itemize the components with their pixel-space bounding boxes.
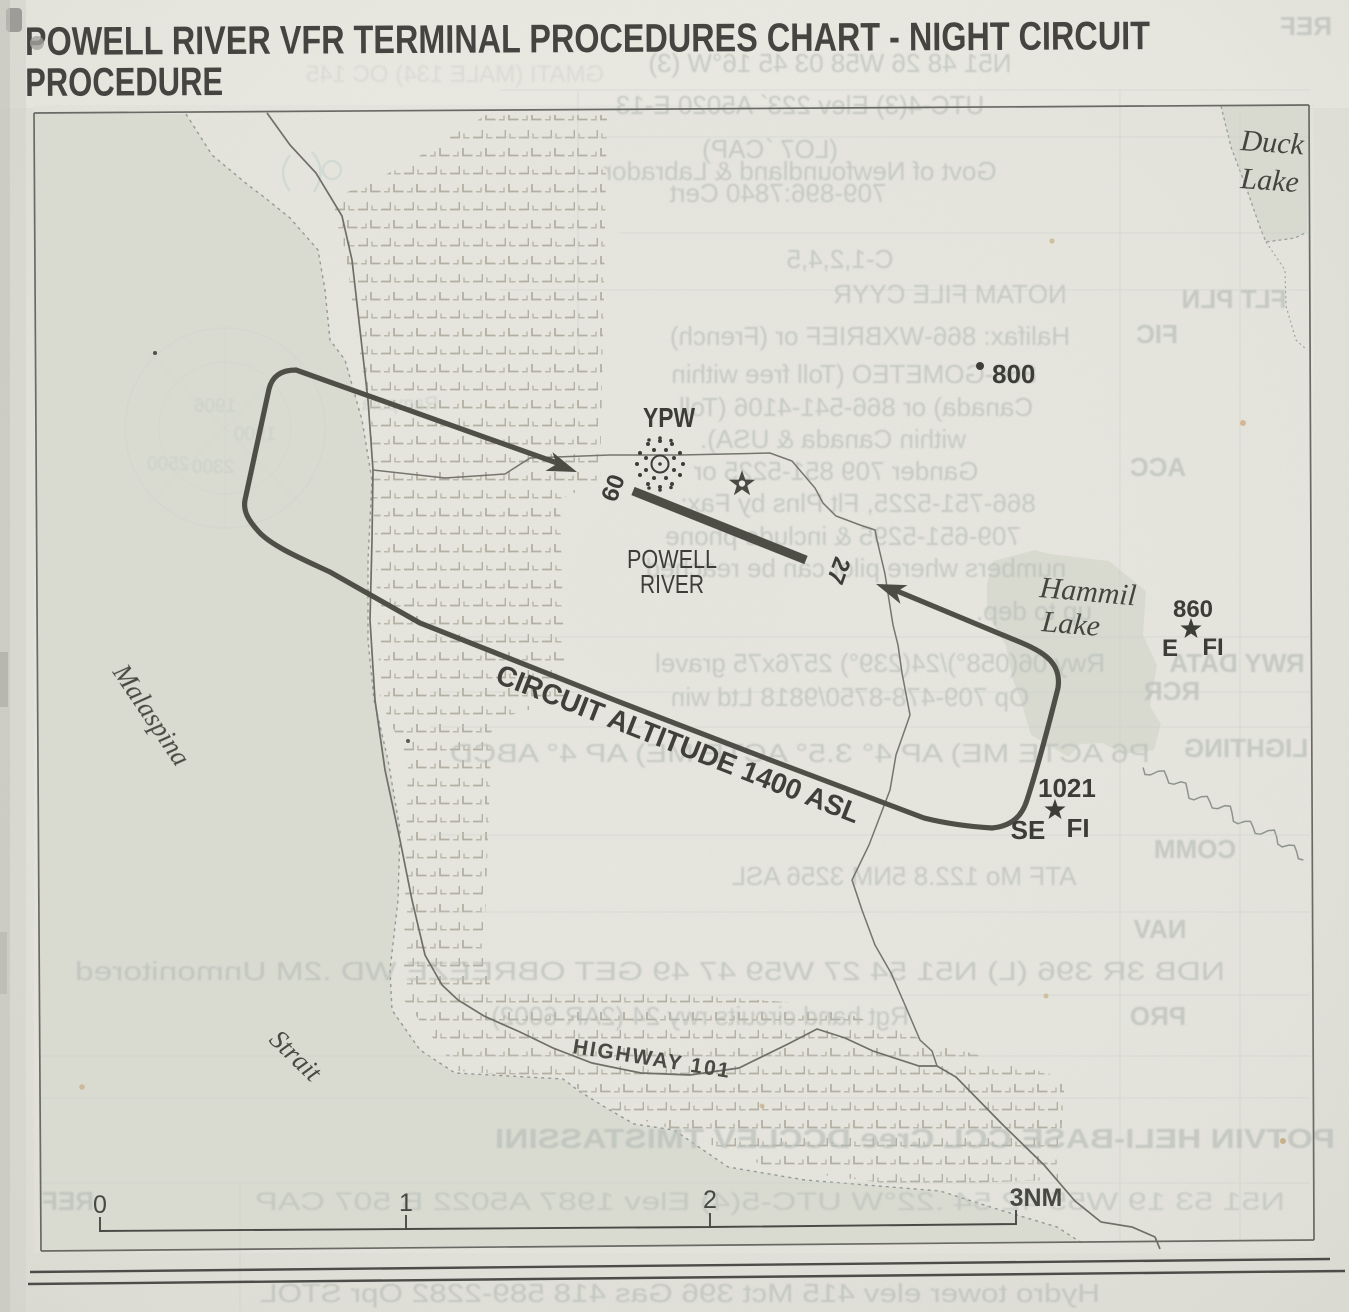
- svg-text:Lake: Lake: [1039, 605, 1101, 643]
- svg-text:FLT PLN: FLT PLN: [1182, 284, 1287, 314]
- svg-text:FI: FI: [1066, 813, 1089, 843]
- svg-text:COMM: COMM: [1154, 834, 1236, 864]
- svg-text:RCR: RCR: [1144, 676, 1201, 706]
- svg-text:E: E: [1162, 635, 1178, 662]
- svg-text:SE: SE: [1011, 815, 1046, 845]
- svg-text:RWY DATA: RWY DATA: [1169, 648, 1305, 678]
- svg-text:Hydro tower elev 415 Mct 396: Hydro tower elev 415 Mct 396 Gas 418 589…: [260, 1278, 1100, 1308]
- svg-text:LIGHTING: LIGHTING: [1184, 733, 1308, 763]
- svg-text:1021: 1021: [1038, 773, 1096, 803]
- svg-text:NOTAM FILE CYYR: NOTAM FILE CYYR: [833, 279, 1067, 309]
- svg-text:REF: REF: [42, 1186, 94, 1216]
- svg-text:POTVIN HELI-BASE CCL Cree DC: POTVIN HELI-BASE CCL Cree DCCLEV TMISTAS…: [495, 1123, 1335, 1154]
- svg-text:within Canada & USA).: within Canada & USA).: [700, 424, 967, 454]
- svg-text:GMATI (MALE 134) OC 145: GMATI (MALE 134) OC 145: [306, 61, 604, 88]
- svg-text:RIVER: RIVER: [640, 571, 704, 599]
- svg-text:2300: 2300: [192, 457, 234, 478]
- svg-text:C-1,2,4,5: C-1,2,4,5: [787, 244, 894, 274]
- svg-text:1: 1: [399, 1189, 413, 1217]
- svg-text:3NM: 3NM: [1010, 1184, 1063, 1212]
- svg-text:Duck: Duck: [1239, 124, 1306, 161]
- svg-text:PROCEDURE: PROCEDURE: [25, 60, 223, 105]
- svg-text:ACC: ACC: [1130, 452, 1187, 482]
- svg-text:0: 0: [93, 1191, 107, 1219]
- svg-text:Op 709-478-8750/9818 Ltd win: Op 709-478-8750/9818 Ltd win: [671, 682, 1030, 712]
- svg-text:PRO: PRO: [1130, 1001, 1186, 1031]
- svg-text:Canada) or 866-541-4106 (Toll: Canada) or 866-541-4106 (Toll: [679, 392, 1033, 422]
- svg-text:Lake: Lake: [1239, 162, 1300, 199]
- svg-text:FIC: FIC: [1136, 319, 1178, 349]
- svg-text:POWELL RIVER VFR TERMINAL PROC: POWELL RIVER VFR TERMINAL PROCEDURES CHA…: [25, 14, 1150, 64]
- svg-text:Rgt hand circuits rwy 24 (2AR: Rgt hand circuits rwy 24 (2AR 6002): [491, 1001, 909, 1031]
- svg-text:FI: FI: [1202, 634, 1223, 661]
- svg-text:NAV: NAV: [1133, 914, 1187, 944]
- svg-text:2500: 2500: [147, 454, 189, 475]
- svg-text:709-896:7840 Cert: 709-896:7840 Cert: [669, 178, 887, 208]
- svg-text:ATF Mo 122.8 5NM 3256 ASL: ATF Mo 122.8 5NM 3256 ASL: [732, 861, 1077, 891]
- svg-text:1906: 1906: [194, 396, 236, 417]
- svg-text:866-751-5225, Flt Plns by Fax:: 866-751-5225, Flt Plns by Fax:: [680, 488, 1036, 518]
- svg-text:2: 2: [703, 1186, 717, 1214]
- svg-text:Halifax: 866-WXBRIEF or (Frenc: Halifax: 866-WXBRIEF or (French): [670, 321, 1070, 351]
- svg-text:POWELL: POWELL: [627, 546, 717, 574]
- svg-text:NDB 3R 396 (L) N51 54 27 W59: NDB 3R 396 (L) N51 54 27 W59 47 49 GET O…: [75, 956, 1225, 986]
- svg-text:YPW: YPW: [643, 402, 695, 433]
- svg-text:860: 860: [1173, 596, 1213, 623]
- svg-text:REF: REF: [1280, 11, 1332, 41]
- svg-text:UTC-4(3) Elev 223´ A5020 E-: UTC-4(3) Elev 223´ A5020 E-13: [616, 90, 985, 120]
- svg-text:800: 800: [992, 359, 1035, 389]
